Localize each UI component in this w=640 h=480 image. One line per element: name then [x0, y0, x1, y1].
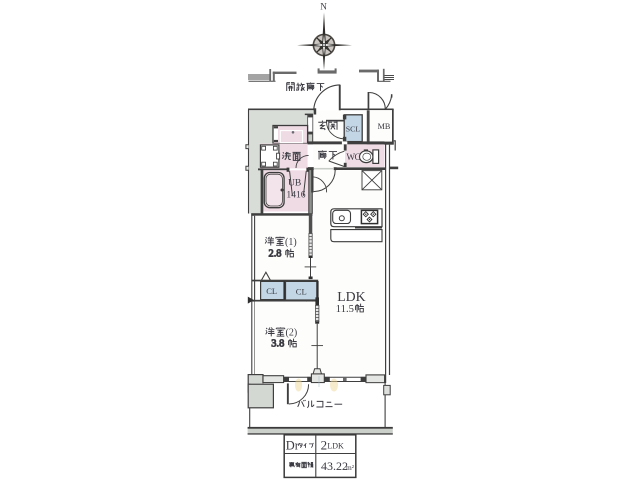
svg-text:(2): (2)	[286, 328, 298, 339]
svg-text:LDK: LDK	[337, 289, 365, 304]
svg-text:UB: UB	[288, 178, 301, 189]
svg-text:SCL: SCL	[346, 125, 361, 134]
svg-text:WC: WC	[346, 152, 360, 162]
svg-text:CL: CL	[296, 287, 307, 297]
svg-text:MB: MB	[378, 122, 391, 131]
svg-text:(1): (1)	[285, 237, 297, 248]
svg-text:Dr: Dr	[286, 438, 300, 452]
svg-text:m²: m²	[346, 463, 355, 472]
svg-text:3.8: 3.8	[271, 339, 284, 350]
svg-text:N: N	[320, 2, 327, 12]
svg-text:LDK: LDK	[327, 442, 344, 451]
svg-text:CL: CL	[266, 286, 277, 296]
svg-text:1416: 1416	[286, 190, 305, 201]
svg-text:11.5: 11.5	[336, 304, 354, 315]
svg-text:2.8: 2.8	[269, 249, 282, 260]
svg-text:43.22: 43.22	[321, 459, 348, 473]
svg-text:2: 2	[321, 438, 328, 453]
